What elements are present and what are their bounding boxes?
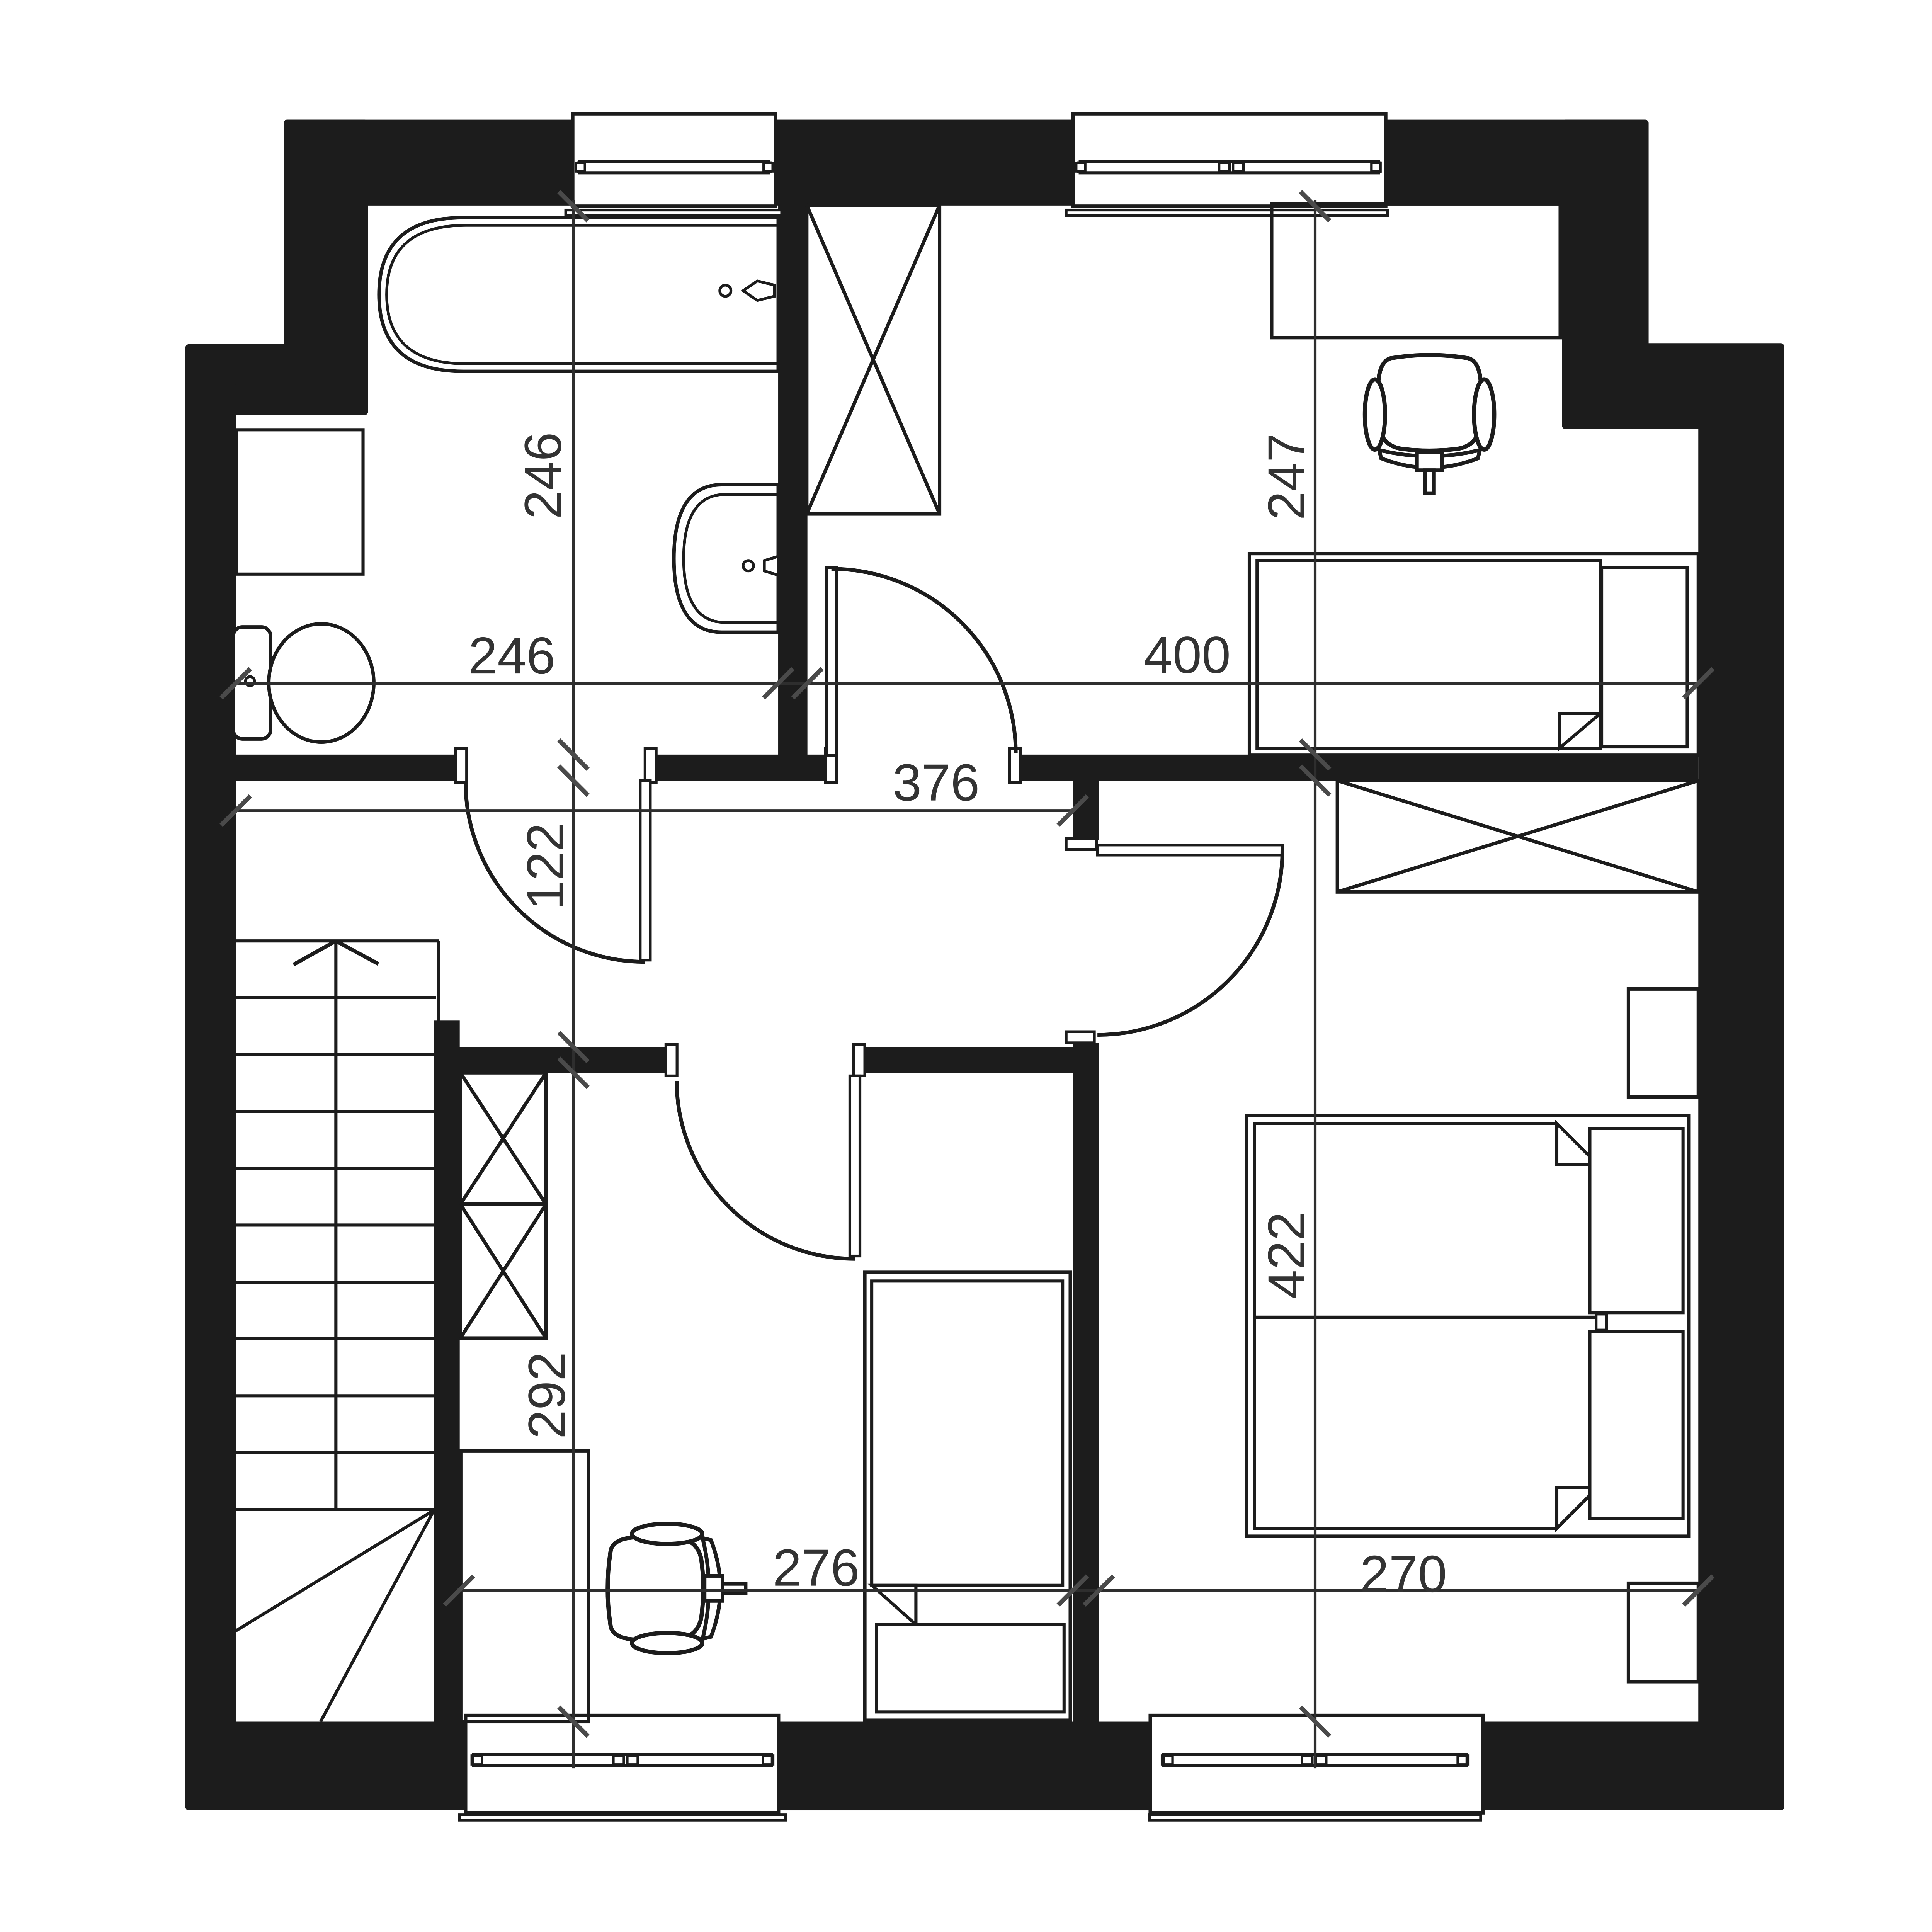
svg-text:246: 246 bbox=[468, 626, 555, 685]
svg-text:292: 292 bbox=[517, 1352, 576, 1439]
svg-text:246: 246 bbox=[514, 432, 572, 519]
svg-text:122: 122 bbox=[516, 823, 575, 910]
svg-text:270: 270 bbox=[1360, 1545, 1447, 1603]
svg-text:376: 376 bbox=[893, 753, 980, 812]
svg-text:276: 276 bbox=[773, 1539, 860, 1597]
svg-text:247: 247 bbox=[1257, 433, 1316, 520]
svg-text:400: 400 bbox=[1144, 626, 1231, 684]
svg-text:422: 422 bbox=[1257, 1212, 1316, 1299]
